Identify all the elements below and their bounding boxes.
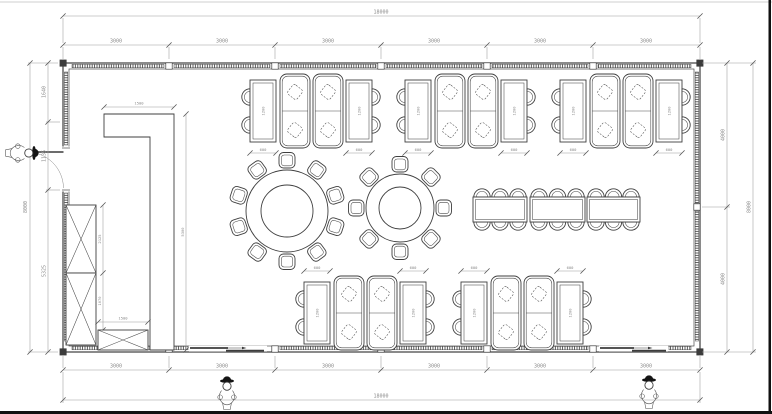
dim-label: 600 [570,147,578,152]
dim-label: 1200 [511,106,516,116]
dim-label: 1200 [567,308,572,318]
bottom-overall-dimension: 18000 [60,372,702,403]
sliding-door-right [599,346,668,352]
bench-cabinet: 1500 [95,316,150,351]
dim-label: 3000 [322,39,334,45]
floor-plan-drawing: 18000 3000 3000 3000 3000 3000 3000 [0,0,772,414]
dim-label: 1200 [260,106,265,116]
lazy-susan [379,187,421,229]
person-figures [5,144,658,410]
dim-label: 1200 [356,106,361,116]
tall-cabinet: 2125 1070 [66,202,106,345]
booth-dining-cluster-top-1: 600 600 1200 1200 [242,74,380,156]
top-segment-dimensions: 3000 3000 3000 3000 3000 3000 [60,39,702,60]
dim-label: 1640 [42,86,48,98]
booth-dining-cluster-top-2: 600 600 1200 1200 [397,74,535,156]
dim-label: 3000 [110,364,122,370]
person-figure-entry [5,144,38,162]
dim-label: 1135 [42,150,48,162]
dim-label: 5300 [180,227,185,237]
person-figure-door-left [218,376,236,409]
dim-label: 4000 [721,129,727,141]
dim-label: 3000 [216,364,228,370]
dim-label: 600 [567,265,575,270]
dim-label: 1500 [134,101,144,106]
dim-label: 8000 [23,201,29,213]
lazy-susan [261,185,313,237]
dim-label: 1200 [570,106,575,116]
right-edge-line [769,0,772,414]
round-table-8-seat [349,157,452,260]
right-overall-dimension: 8000 [747,60,756,354]
dim-label: 3000 [428,39,440,45]
person-figure-door-right [640,375,658,408]
dim-label: 3000 [534,39,546,45]
dim-label: 8000 [747,201,753,213]
dim-label: 3000 [322,364,334,370]
dim-label: 600 [314,265,322,270]
booth-dining-cluster-bottom-2: 600 600 1200 1200 [453,265,591,350]
dim-label: 3000 [216,39,228,45]
dim-label: 1200 [314,308,319,318]
dim-label: 1200 [410,308,415,318]
left-segment-dimensions: 1640 1135 5325 [42,60,61,354]
dim-label: 600 [260,147,268,152]
dim-label: 18000 [373,10,388,16]
floor-plan-canvas: 18000 3000 3000 3000 3000 3000 3000 [0,0,772,414]
booth-dining-cluster-top-3: 600 600 1200 1200 [552,74,690,156]
dim-label: 3000 [534,364,546,370]
l-shaped-counter: 1500 5300 [101,101,188,353]
dim-label: 2125 [97,234,102,243]
dim-label: 600 [356,147,364,152]
dim-label: 5325 [42,265,48,277]
dim-label: 4000 [721,273,727,285]
sliding-door-left [189,346,267,352]
dim-label: 1200 [415,106,420,116]
dim-label: 600 [410,265,418,270]
dim-label: 600 [666,147,674,152]
dim-label: 1500 [118,316,128,321]
bottom-segment-dimensions: 3000 3000 3000 3000 3000 3000 [60,356,702,373]
dim-label: 18000 [373,394,388,400]
left-overall-dimension: 8000 [23,60,58,354]
booth-dining-cluster-bottom-1: 600 600 1200 1200 [296,265,434,350]
dim-label: 1200 [666,106,671,116]
top-overall-dimension: 18000 [60,10,702,44]
dim-label: 1070 [97,296,102,306]
top-edge-line [0,2,772,3]
dim-label: 3000 [640,364,652,370]
dim-label: 600 [415,147,423,152]
dim-label: 3000 [110,39,122,45]
round-table-10-seat [229,153,345,270]
dim-label: 600 [511,147,519,152]
dim-label: 3000 [428,364,440,370]
dim-label: 600 [471,265,479,270]
dim-label: 1200 [471,308,476,318]
banquet-table [473,189,640,230]
dim-label: 3000 [640,39,652,45]
